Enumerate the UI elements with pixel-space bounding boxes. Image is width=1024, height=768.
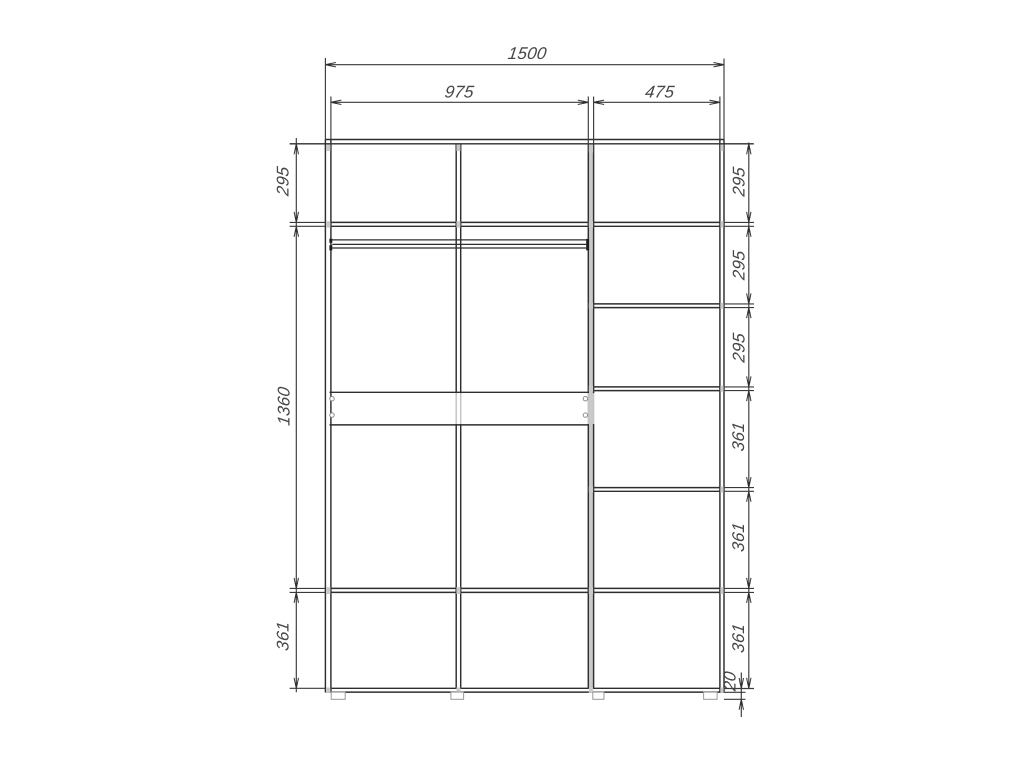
svg-text:361: 361 bbox=[729, 421, 748, 453]
svg-text:475: 475 bbox=[644, 82, 676, 101]
svg-text:295: 295 bbox=[274, 165, 293, 198]
svg-text:361: 361 bbox=[729, 622, 748, 654]
svg-text:1360: 1360 bbox=[275, 385, 294, 427]
svg-text:361: 361 bbox=[729, 521, 748, 553]
svg-text:975: 975 bbox=[444, 82, 476, 101]
svg-text:1500: 1500 bbox=[507, 44, 549, 63]
svg-text:361: 361 bbox=[274, 620, 293, 652]
svg-text:295: 295 bbox=[730, 331, 749, 364]
svg-text:295: 295 bbox=[730, 249, 749, 282]
svg-text:20: 20 bbox=[721, 670, 740, 693]
svg-text:295: 295 bbox=[730, 165, 749, 198]
